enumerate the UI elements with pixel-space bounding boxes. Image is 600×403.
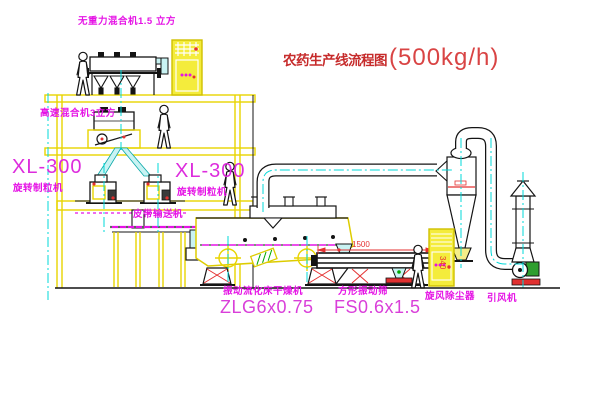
control-cabinet-upper <box>172 40 202 95</box>
person-top-floor <box>77 52 90 95</box>
induced-draft-fan <box>512 262 540 285</box>
label-granulator-right-name: 旋转制粒机 <box>177 188 227 198</box>
label-high-speed-mixer: 高速混合机3立方 <box>40 109 116 119</box>
label-screen-model: FS0.6x1.5 <box>334 298 421 316</box>
label-granulator-right-model: XL-300 <box>175 161 246 181</box>
belt-conveyor <box>110 227 198 287</box>
gravity-mixer <box>85 52 168 95</box>
label-granulator-left-model: XL-300 <box>12 157 83 177</box>
diagram-title: 农药生产线流程图 (500kg/h) <box>283 44 499 72</box>
label-granulator-left-name: 旋转制粒机 <box>13 184 63 194</box>
label-screen-name: 方形振动筛 <box>338 287 388 297</box>
label-fan: 引风机 <box>487 294 517 304</box>
label-gravity-mixer: 无重力混合机1.5 立方 <box>78 17 176 27</box>
dimension-screen-length: 1500 <box>352 241 370 249</box>
dimension-screen-height: 340 <box>438 256 446 269</box>
split-chute <box>97 148 151 176</box>
cad-flow-diagram: 农药生产线流程图 (500kg/h) 无重力混合机1.5 立方 高速混合机3立方… <box>0 0 600 403</box>
label-belt-conveyor: 皮带输送机 <box>133 210 183 220</box>
title-chinese: 农药生产线流程图 <box>283 49 387 69</box>
person-mid-floor <box>158 105 171 148</box>
title-capacity: (500kg/h) <box>389 44 499 72</box>
label-cyclone: 旋风除尘器 <box>425 292 475 302</box>
label-dryer-model: ZLG6x0.75 <box>220 298 314 316</box>
label-dryer-name: 振动流化床干燥机 <box>223 287 303 297</box>
